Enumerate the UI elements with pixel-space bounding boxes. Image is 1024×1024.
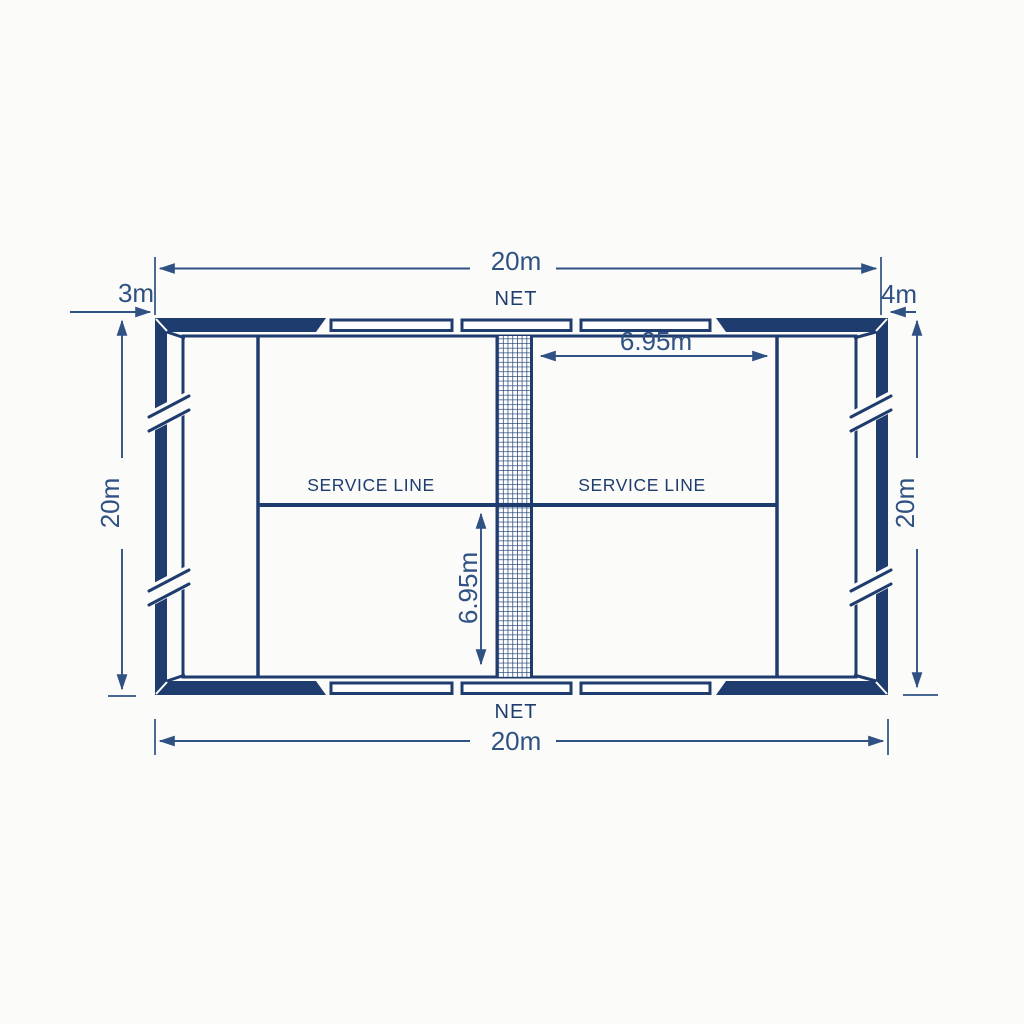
diagram-canvas: 20m 3m 4m 20m 20m 20m 6.95m 6.95	[0, 0, 1024, 1024]
bottom-fence-panel-1	[331, 683, 452, 694]
right-wall	[876, 318, 888, 695]
dim-right-length-label: 20m	[890, 478, 920, 529]
bottom-fence-panel-3	[581, 683, 710, 694]
bottom-wall-right-section	[716, 681, 888, 695]
net-label-bottom: NET	[495, 701, 538, 723]
top-fence-panel-2	[462, 320, 571, 331]
dim-right-wall-height: 4m	[881, 279, 917, 312]
service-line-label-left: SERVICE LINE	[307, 475, 434, 495]
left-wall	[155, 318, 167, 695]
bottom-wall-left-section	[155, 681, 326, 695]
dim-top-width-label: 20m	[491, 246, 542, 276]
top-wall-right-section	[716, 318, 888, 332]
service-line-label-right: SERVICE LINE	[578, 475, 705, 495]
court-diagram: 20m 3m 4m 20m 20m 20m 6.95m 6.95	[0, 0, 1024, 1024]
dim-3m-label: 3m	[118, 278, 154, 308]
top-fence-panel-1	[331, 320, 452, 331]
bottom-fence-panel-2	[462, 683, 571, 694]
dim-left-length-label: 20m	[95, 478, 125, 529]
net-label-top: NET	[495, 288, 538, 310]
top-wall-left-section	[155, 318, 326, 332]
dim-695-vertical-label: 6.95m	[453, 552, 483, 624]
dim-4m-label: 4m	[881, 279, 917, 309]
dim-695-horizontal-label: 6.95m	[620, 326, 692, 356]
dim-bottom-width-label: 20m	[491, 726, 542, 756]
